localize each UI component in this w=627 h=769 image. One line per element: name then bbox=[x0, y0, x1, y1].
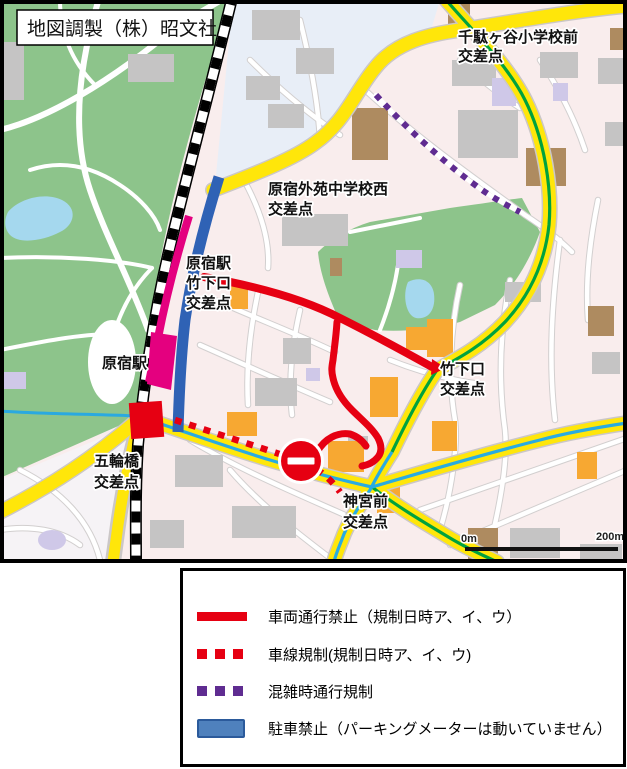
legend-label-no-parking: 駐車禁止（パーキングメーターは動いていません） bbox=[268, 718, 612, 739]
label-gorinbashi-1: 五輪橋 bbox=[94, 452, 140, 470]
label-takeshita-guchi-1: 竹下口 bbox=[439, 360, 485, 378]
scale-end-label: 200m bbox=[596, 531, 624, 543]
legend-row-vehicle-ban: 車両通行禁止（規制日時ア、イ、ウ） bbox=[183, 601, 623, 631]
label-harajuku-takeshita-2: 竹下口 bbox=[185, 274, 231, 292]
legend-row-no-parking: 駐車禁止（パーキングメーターは動いていません） bbox=[183, 713, 623, 743]
solid-red-line-swatch bbox=[197, 612, 263, 621]
label-sendagaya-1: 千駄ヶ谷小学校前 bbox=[458, 28, 578, 46]
shrine-pond bbox=[405, 279, 434, 318]
scale-start-label: 0m bbox=[461, 533, 477, 545]
purple-dotted-line-swatch bbox=[197, 686, 263, 696]
map-frame: 0m 200m 千駄ヶ谷小学校前 交差点 原宿外苑中学校西 交差点 原宿駅 竹下… bbox=[0, 0, 627, 563]
blue-band-swatch bbox=[197, 719, 263, 738]
regulated-building bbox=[129, 401, 164, 439]
label-gaien-west-2: 交差点 bbox=[268, 200, 313, 218]
label-jingumae-1: 神宮前 bbox=[343, 492, 388, 510]
legend-row-lane-restriction: 車線規制(規制日時ア、イ、ウ) bbox=[183, 639, 623, 669]
no-entry-sign bbox=[278, 438, 324, 484]
map-credit-text: 地図調製（株）昭文社 bbox=[27, 18, 217, 40]
label-jingumae-2: 交差点 bbox=[343, 513, 388, 531]
label-harajuku-takeshita-3: 交差点 bbox=[186, 294, 231, 312]
label-harajuku-station: 原宿駅 bbox=[102, 354, 148, 372]
legend-box: 車両通行禁止（規制日時ア、イ、ウ） 車線規制(規制日時ア、イ、ウ) 混雑時通行規… bbox=[180, 568, 626, 767]
legend-row-congestion: 混雑時通行規制 bbox=[183, 676, 623, 706]
legend-label-congestion: 混雑時通行規制 bbox=[268, 681, 373, 702]
red-dotted-line-swatch bbox=[197, 649, 263, 659]
label-harajuku-takeshita-1: 原宿駅 bbox=[186, 254, 232, 272]
legend-label-vehicle-ban: 車両通行禁止（規制日時ア、イ、ウ） bbox=[268, 606, 521, 627]
legend-label-lane-restriction: 車線規制(規制日時ア、イ、ウ) bbox=[268, 644, 471, 665]
label-sendagaya-2: 交差点 bbox=[458, 47, 503, 65]
map-credit: 地図調製（株）昭文社 bbox=[17, 10, 217, 45]
label-gaien-west-1: 原宿外苑中学校西 bbox=[268, 180, 388, 198]
page: 0m 200m 千駄ヶ谷小学校前 交差点 原宿外苑中学校西 交差点 原宿駅 竹下… bbox=[0, 0, 627, 769]
label-takeshita-guchi-2: 交差点 bbox=[440, 380, 485, 398]
map-canvas: 0m 200m 千駄ヶ谷小学校前 交差点 原宿外苑中学校西 交差点 原宿駅 竹下… bbox=[0, 0, 627, 563]
label-gorinbashi-2: 交差点 bbox=[94, 473, 139, 491]
